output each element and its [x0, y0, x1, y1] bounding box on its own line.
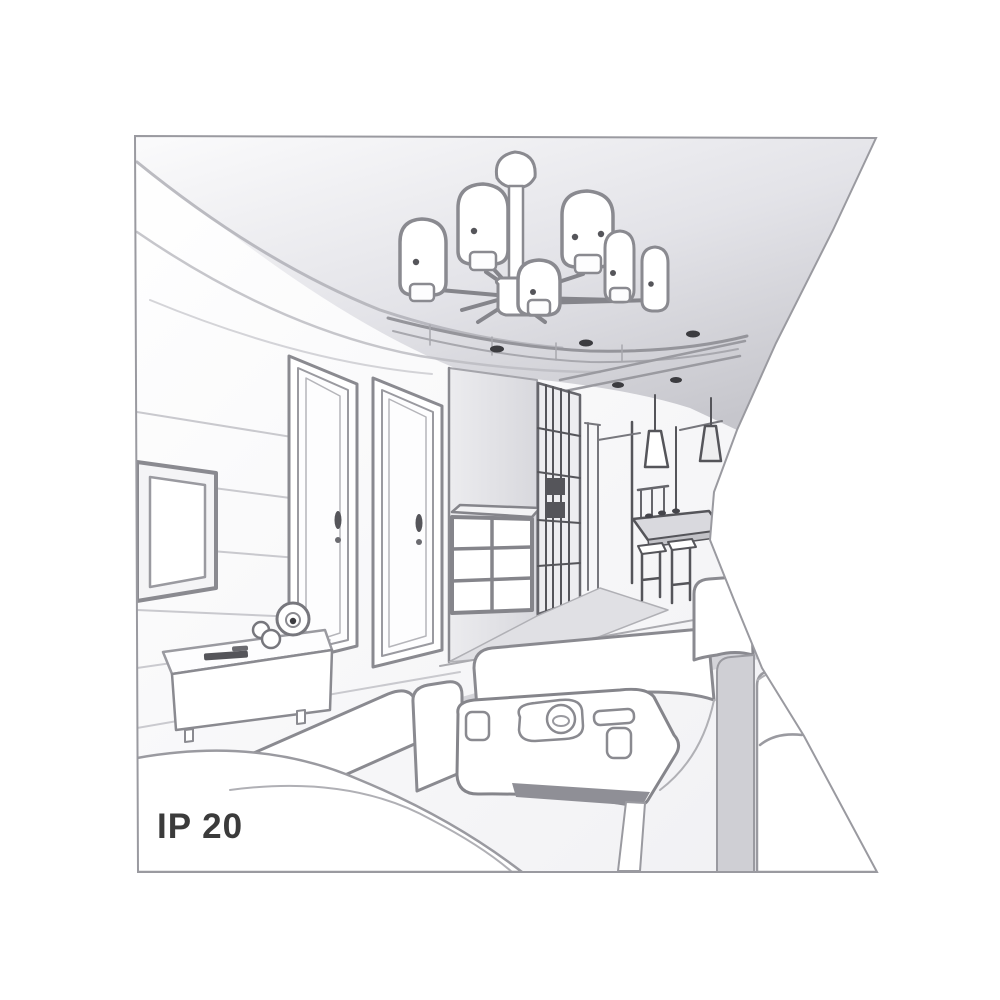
- ip-rating-label: IP 20: [157, 807, 243, 846]
- tv: [137, 462, 216, 601]
- room-illustration: IP 20: [0, 0, 1000, 1000]
- alarm-clock: [277, 603, 309, 635]
- product-illustration-page: IP 20: [0, 0, 1000, 1000]
- decor-cup-left: [466, 712, 489, 740]
- wardrobe: [538, 383, 580, 614]
- drawer-chest: [452, 505, 540, 613]
- decor-tray: [519, 700, 583, 741]
- sofa-right: [694, 577, 877, 872]
- decor-cup-right: [607, 728, 631, 758]
- decor-remote: [594, 709, 635, 726]
- door-right: [373, 378, 442, 667]
